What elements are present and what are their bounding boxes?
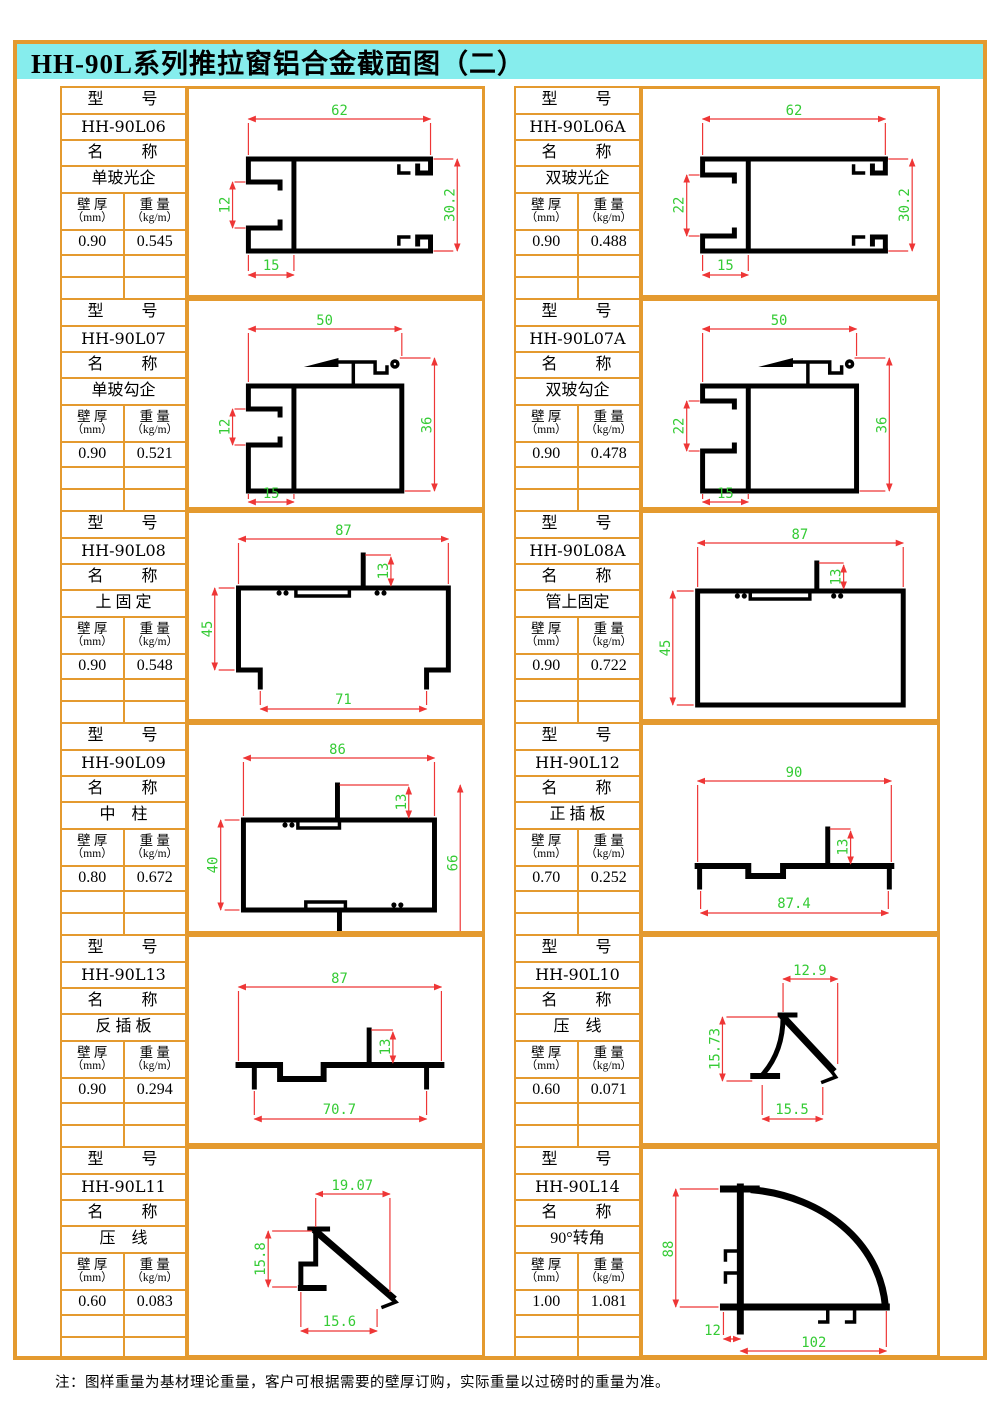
weight-value: 0.672 (124, 866, 187, 891)
model-label: 型 号 (61, 87, 186, 114)
empty-cell (124, 1103, 187, 1125)
drawing-panel: 90 13 87.4 (641, 722, 940, 934)
empty-cell (124, 1315, 187, 1337)
dim-label: 13 (378, 1039, 394, 1056)
thickness-value: 0.90 (515, 654, 578, 679)
dim-label: 15.73 (708, 1028, 724, 1070)
weight-value: 0.545 (124, 230, 187, 255)
dim-label: 66 (445, 855, 461, 872)
drawing-panel: 87 13 45 71 (187, 510, 485, 722)
thickness-header: 壁 厚（mm） (515, 1041, 578, 1078)
thickness-value: 0.90 (61, 1078, 124, 1103)
thickness-header: 壁 厚（mm） (515, 405, 578, 442)
weight-header: 重 量（kg/m） (578, 405, 641, 442)
thickness-value: 0.90 (61, 230, 124, 255)
empty-cell (578, 467, 641, 489)
dim-label: 19.07 (331, 1178, 373, 1194)
name-label: 名 称 (515, 776, 640, 802)
thickness-header: 壁 厚（mm） (61, 617, 124, 654)
dim-label: 13 (376, 563, 392, 580)
dim-label: 88 (661, 1241, 677, 1258)
profile-drawing: 62 12 30.2 15 (189, 89, 482, 295)
dim-label: 70.7 (323, 1102, 356, 1118)
model-label: 型 号 (61, 1147, 186, 1174)
dim-label: 13 (836, 839, 852, 856)
dim-label: 13 (829, 569, 845, 586)
thickness-header: 壁 厚（mm） (61, 829, 124, 866)
drawing-panel: 87 13 45 (641, 510, 940, 722)
weight-header: 重 量（kg/m） (124, 405, 187, 442)
empty-cell (515, 1125, 578, 1147)
empty-cell (124, 489, 187, 511)
dim-label: 62 (786, 103, 803, 119)
drawing-panel: 88 12 102 (641, 1146, 940, 1358)
dim-label: 15 (263, 486, 280, 502)
empty-cell (578, 701, 641, 723)
dim-label: 12 (218, 419, 234, 436)
empty-cell (61, 1103, 124, 1125)
drawing-panel: 62 12 30.2 15 (187, 86, 485, 298)
empty-cell (124, 913, 187, 935)
thickness-header: 壁 厚（mm） (61, 1253, 124, 1290)
weight-value: 0.478 (578, 442, 641, 467)
name-value: 正 插 板 (515, 802, 640, 829)
model-label: 型 号 (515, 935, 640, 962)
weight-header: 重 量（kg/m） (124, 193, 187, 230)
thickness-header: 壁 厚（mm） (515, 829, 578, 866)
empty-cell (578, 277, 641, 299)
dim-label: 12.9 (793, 963, 826, 979)
spec-table: 型 号 HH-90L06A 名 称 双玻光企 壁 厚（mm） 重 量（kg/m）… (514, 86, 641, 300)
name-value: 双玻光企 (515, 166, 640, 193)
model-value: HH-90L13 (61, 962, 186, 988)
empty-cell (61, 701, 124, 723)
name-value: 反 插 板 (61, 1014, 186, 1041)
name-value: 单玻光企 (61, 166, 186, 193)
empty-cell (578, 255, 641, 277)
dim-label: 15.6 (323, 1314, 356, 1330)
name-value: 上 固 定 (61, 590, 186, 617)
spec-table: 型 号 HH-90L08 名 称 上 固 定 壁 厚（mm） 重 量（kg/m）… (60, 510, 187, 724)
model-value: HH-90L07 (61, 326, 186, 352)
unit-hh-90l06a: 型 号 HH-90L06A 名 称 双玻光企 壁 厚（mm） 重 量（kg/m）… (514, 86, 940, 298)
empty-cell (61, 913, 124, 935)
empty-cell (124, 1337, 187, 1359)
empty-cell (515, 891, 578, 913)
model-value: HH-90L14 (515, 1174, 640, 1200)
empty-cell (515, 255, 578, 277)
name-label: 名 称 (61, 564, 186, 590)
weight-header: 重 量（kg/m） (124, 1253, 187, 1290)
empty-cell (61, 277, 124, 299)
drawing-panel: 50 22 36 15 (641, 298, 940, 510)
empty-cell (515, 1337, 578, 1359)
units-grid: 型 号 HH-90L06 名 称 单玻光企 壁 厚（mm） 重 量（kg/m） … (60, 86, 983, 1358)
thickness-header: 壁 厚（mm） (61, 193, 124, 230)
model-value: HH-90L12 (515, 750, 640, 776)
dim-label: 12 (704, 1323, 721, 1339)
model-value: HH-90L09 (61, 750, 186, 776)
thickness-value: 0.90 (61, 442, 124, 467)
unit-hh-90l13: 型 号 HH-90L13 名 称 反 插 板 壁 厚（mm） 重 量（kg/m）… (60, 934, 485, 1146)
empty-cell (61, 1125, 124, 1147)
thickness-value: 0.60 (61, 1290, 124, 1315)
weight-value: 0.083 (124, 1290, 187, 1315)
drawing-panel: 62 22 30.2 15 (641, 86, 940, 298)
unit-hh-90l10: 型 号 HH-90L10 名 称 压 线 壁 厚（mm） 重 量（kg/m） 0… (514, 934, 940, 1146)
dim-label: 30.2 (897, 188, 913, 222)
empty-cell (124, 277, 187, 299)
empty-cell (61, 1315, 124, 1337)
empty-cell (515, 1315, 578, 1337)
empty-cell (124, 679, 187, 701)
profile-drawing: 88 12 102 (643, 1149, 937, 1355)
thickness-header: 壁 厚（mm） (515, 617, 578, 654)
weight-header: 重 量（kg/m） (578, 1253, 641, 1290)
name-label: 名 称 (61, 140, 186, 166)
dim-label: 71 (335, 692, 352, 708)
empty-cell (515, 679, 578, 701)
empty-cell (515, 701, 578, 723)
model-label: 型 号 (61, 723, 186, 750)
empty-cell (578, 679, 641, 701)
profile-drawing: 50 12 36 15 (189, 301, 482, 507)
weight-value: 0.294 (124, 1078, 187, 1103)
unit-hh-90l12: 型 号 HH-90L12 名 称 正 插 板 壁 厚（mm） 重 量（kg/m）… (514, 722, 940, 934)
dim-label: 86 (329, 742, 346, 758)
profile-drawing: 87 13 70.7 (189, 937, 482, 1143)
empty-cell (515, 467, 578, 489)
weight-value: 0.252 (578, 866, 641, 891)
model-value: HH-90L07A (515, 326, 640, 352)
weight-value: 0.521 (124, 442, 187, 467)
dim-label: 30.2 (442, 188, 458, 222)
empty-cell (578, 1125, 641, 1147)
dim-label: 15.5 (775, 1102, 808, 1118)
unit-hh-90l07: 型 号 HH-90L07 名 称 单玻勾企 壁 厚（mm） 重 量（kg/m） … (60, 298, 485, 510)
unit-hh-90l06: 型 号 HH-90L06 名 称 单玻光企 壁 厚（mm） 重 量（kg/m） … (60, 86, 485, 298)
unit-hh-90l08a: 型 号 HH-90L08A 名 称 管上固定 壁 厚（mm） 重 量（kg/m）… (514, 510, 940, 722)
dim-label: 40 (206, 857, 222, 874)
weight-value: 0.071 (578, 1078, 641, 1103)
thickness-header: 壁 厚（mm） (61, 405, 124, 442)
model-value: HH-90L08 (61, 538, 186, 564)
unit-hh-90l07a: 型 号 HH-90L07A 名 称 双玻勾企 壁 厚（mm） 重 量（kg/m）… (514, 298, 940, 510)
model-value: HH-90L11 (61, 1174, 186, 1200)
dim-label: 102 (801, 1335, 826, 1351)
spec-table: 型 号 HH-90L07A 名 称 双玻勾企 壁 厚（mm） 重 量（kg/m）… (514, 298, 641, 512)
name-label: 名 称 (515, 1200, 640, 1226)
name-label: 名 称 (61, 352, 186, 378)
empty-cell (61, 1337, 124, 1359)
empty-cell (124, 467, 187, 489)
weight-header: 重 量（kg/m） (578, 193, 641, 230)
dim-label: 15 (717, 258, 734, 274)
name-value: 单玻勾企 (61, 378, 186, 405)
spec-table: 型 号 HH-90L11 名 称 压 线 壁 厚（mm） 重 量（kg/m） 0… (60, 1146, 187, 1360)
empty-cell (515, 913, 578, 935)
spec-table: 型 号 HH-90L14 名 称 90°转角 壁 厚（mm） 重 量（kg/m）… (514, 1146, 641, 1360)
spec-table: 型 号 HH-90L09 名 称 中 柱 壁 厚（mm） 重 量（kg/m） 0… (60, 722, 187, 936)
model-label: 型 号 (61, 935, 186, 962)
dim-label: 50 (316, 313, 333, 329)
spec-table: 型 号 HH-90L08A 名 称 管上固定 壁 厚（mm） 重 量（kg/m）… (514, 510, 641, 724)
spec-table: 型 号 HH-90L12 名 称 正 插 板 壁 厚（mm） 重 量（kg/m）… (514, 722, 641, 936)
unit-hh-90l09: 型 号 HH-90L09 名 称 中 柱 壁 厚（mm） 重 量（kg/m） 0… (60, 722, 485, 934)
profile-drawing: 90 13 87.4 (643, 725, 937, 931)
spec-table: 型 号 HH-90L10 名 称 压 线 壁 厚（mm） 重 量（kg/m） 0… (514, 934, 641, 1148)
dim-label: 62 (331, 103, 348, 119)
empty-cell (578, 1337, 641, 1359)
thickness-header: 壁 厚（mm） (61, 1041, 124, 1078)
empty-cell (124, 891, 187, 913)
profile-drawing: 50 22 36 15 (643, 301, 937, 507)
name-label: 名 称 (515, 140, 640, 166)
weight-header: 重 量（kg/m） (578, 617, 641, 654)
dim-label: 87 (331, 971, 348, 987)
dim-label: 15.8 (253, 1242, 269, 1276)
empty-cell (61, 891, 124, 913)
dim-label: 87 (792, 527, 809, 543)
thickness-header: 壁 厚（mm） (515, 193, 578, 230)
name-value: 中 柱 (61, 802, 186, 829)
unit-hh-90l11: 型 号 HH-90L11 名 称 压 线 壁 厚（mm） 重 量（kg/m） 0… (60, 1146, 485, 1358)
drawing-panel: 12.9 15.73 15.5 (641, 934, 940, 1146)
thickness-value: 0.60 (515, 1078, 578, 1103)
model-value: HH-90L06 (61, 114, 186, 140)
model-label: 型 号 (515, 723, 640, 750)
dim-label: 13 (394, 794, 410, 811)
empty-cell (578, 891, 641, 913)
profile-drawing: 12.9 15.73 15.5 (643, 937, 937, 1143)
name-label: 名 称 (61, 1200, 186, 1226)
weight-header: 重 量（kg/m） (124, 617, 187, 654)
dim-label: 15 (263, 258, 280, 274)
name-label: 名 称 (61, 988, 186, 1014)
unit-hh-90l08: 型 号 HH-90L08 名 称 上 固 定 壁 厚（mm） 重 量（kg/m）… (60, 510, 485, 722)
weight-header: 重 量（kg/m） (124, 829, 187, 866)
empty-cell (578, 1103, 641, 1125)
drawing-panel: 86 13 40 66 (187, 722, 485, 934)
name-value: 压 线 (61, 1226, 186, 1253)
dim-label: 50 (771, 313, 788, 329)
empty-cell (61, 679, 124, 701)
thickness-value: 0.90 (61, 654, 124, 679)
empty-cell (61, 467, 124, 489)
profile-drawing: 86 13 40 66 (189, 725, 482, 931)
thickness-header: 壁 厚（mm） (515, 1253, 578, 1290)
dim-label: 36 (874, 417, 890, 434)
empty-cell (578, 1315, 641, 1337)
name-value: 双玻勾企 (515, 378, 640, 405)
empty-cell (515, 489, 578, 511)
weight-header: 重 量（kg/m） (578, 829, 641, 866)
dim-label: 22 (672, 418, 688, 435)
name-label: 名 称 (515, 988, 640, 1014)
name-value: 管上固定 (515, 590, 640, 617)
name-label: 名 称 (515, 352, 640, 378)
model-label: 型 号 (515, 87, 640, 114)
spec-table: 型 号 HH-90L07 名 称 单玻勾企 壁 厚（mm） 重 量（kg/m） … (60, 298, 187, 512)
name-label: 名 称 (515, 564, 640, 590)
page-title: HH-90L系列推拉窗铝合金截面图（二） (31, 42, 525, 81)
dim-label: 36 (420, 417, 436, 434)
dim-label: 87.4 (777, 896, 810, 912)
thickness-value: 0.90 (515, 230, 578, 255)
dim-label: 90 (786, 765, 803, 781)
dim-label: 87 (335, 523, 352, 539)
model-label: 型 号 (61, 511, 186, 538)
title-bar: HH-90L系列推拉窗铝合金截面图（二） (17, 44, 983, 79)
weight-value: 1.081 (578, 1290, 641, 1315)
model-label: 型 号 (515, 299, 640, 326)
footer-note: 注：图样重量为基材理论重量，客户可根据需要的壁厚订购，实际重量以过磅时的重量为准… (55, 1371, 670, 1392)
dim-label: 22 (672, 197, 688, 214)
weight-header: 重 量（kg/m） (124, 1041, 187, 1078)
profile-drawing: 87 13 45 (643, 513, 937, 719)
model-label: 型 号 (61, 299, 186, 326)
dim-label: 45 (200, 621, 216, 638)
thickness-value: 0.80 (61, 866, 124, 891)
spec-table: 型 号 HH-90L13 名 称 反 插 板 壁 厚（mm） 重 量（kg/m）… (60, 934, 187, 1148)
drawing-panel: 50 12 36 15 (187, 298, 485, 510)
profile-drawing: 19.07 15.8 15.6 (189, 1149, 482, 1355)
weight-value: 0.488 (578, 230, 641, 255)
empty-cell (61, 255, 124, 277)
model-value: HH-90L08A (515, 538, 640, 564)
empty-cell (124, 1125, 187, 1147)
model-value: HH-90L06A (515, 114, 640, 140)
name-value: 压 线 (515, 1014, 640, 1041)
empty-cell (124, 255, 187, 277)
drawing-panel: 87 13 70.7 (187, 934, 485, 1146)
empty-cell (515, 277, 578, 299)
spec-table: 型 号 HH-90L06 名 称 单玻光企 壁 厚（mm） 重 量（kg/m） … (60, 86, 187, 300)
weight-value: 0.548 (124, 654, 187, 679)
weight-header: 重 量（kg/m） (578, 1041, 641, 1078)
model-value: HH-90L10 (515, 962, 640, 988)
empty-cell (578, 489, 641, 511)
name-label: 名 称 (61, 776, 186, 802)
empty-cell (124, 701, 187, 723)
empty-cell (515, 1103, 578, 1125)
page-frame: HH-90L系列推拉窗铝合金截面图（二） 型 号 HH-90L06 名 称 单玻… (13, 40, 987, 1360)
model-label: 型 号 (515, 511, 640, 538)
thickness-value: 0.90 (515, 442, 578, 467)
drawing-panel: 19.07 15.8 15.6 (187, 1146, 485, 1358)
weight-value: 0.722 (578, 654, 641, 679)
empty-cell (578, 913, 641, 935)
dim-label: 12 (218, 197, 234, 214)
dim-label: 15 (717, 486, 734, 502)
model-label: 型 号 (515, 1147, 640, 1174)
name-value: 90°转角 (515, 1226, 640, 1253)
profile-drawing: 62 22 30.2 15 (643, 89, 937, 295)
thickness-value: 1.00 (515, 1290, 578, 1315)
unit-hh-90l14: 型 号 HH-90L14 名 称 90°转角 壁 厚（mm） 重 量（kg/m）… (514, 1146, 940, 1358)
profile-drawing: 87 13 45 71 (189, 513, 482, 719)
dim-label: 45 (658, 640, 674, 657)
empty-cell (61, 489, 124, 511)
thickness-value: 0.70 (515, 866, 578, 891)
